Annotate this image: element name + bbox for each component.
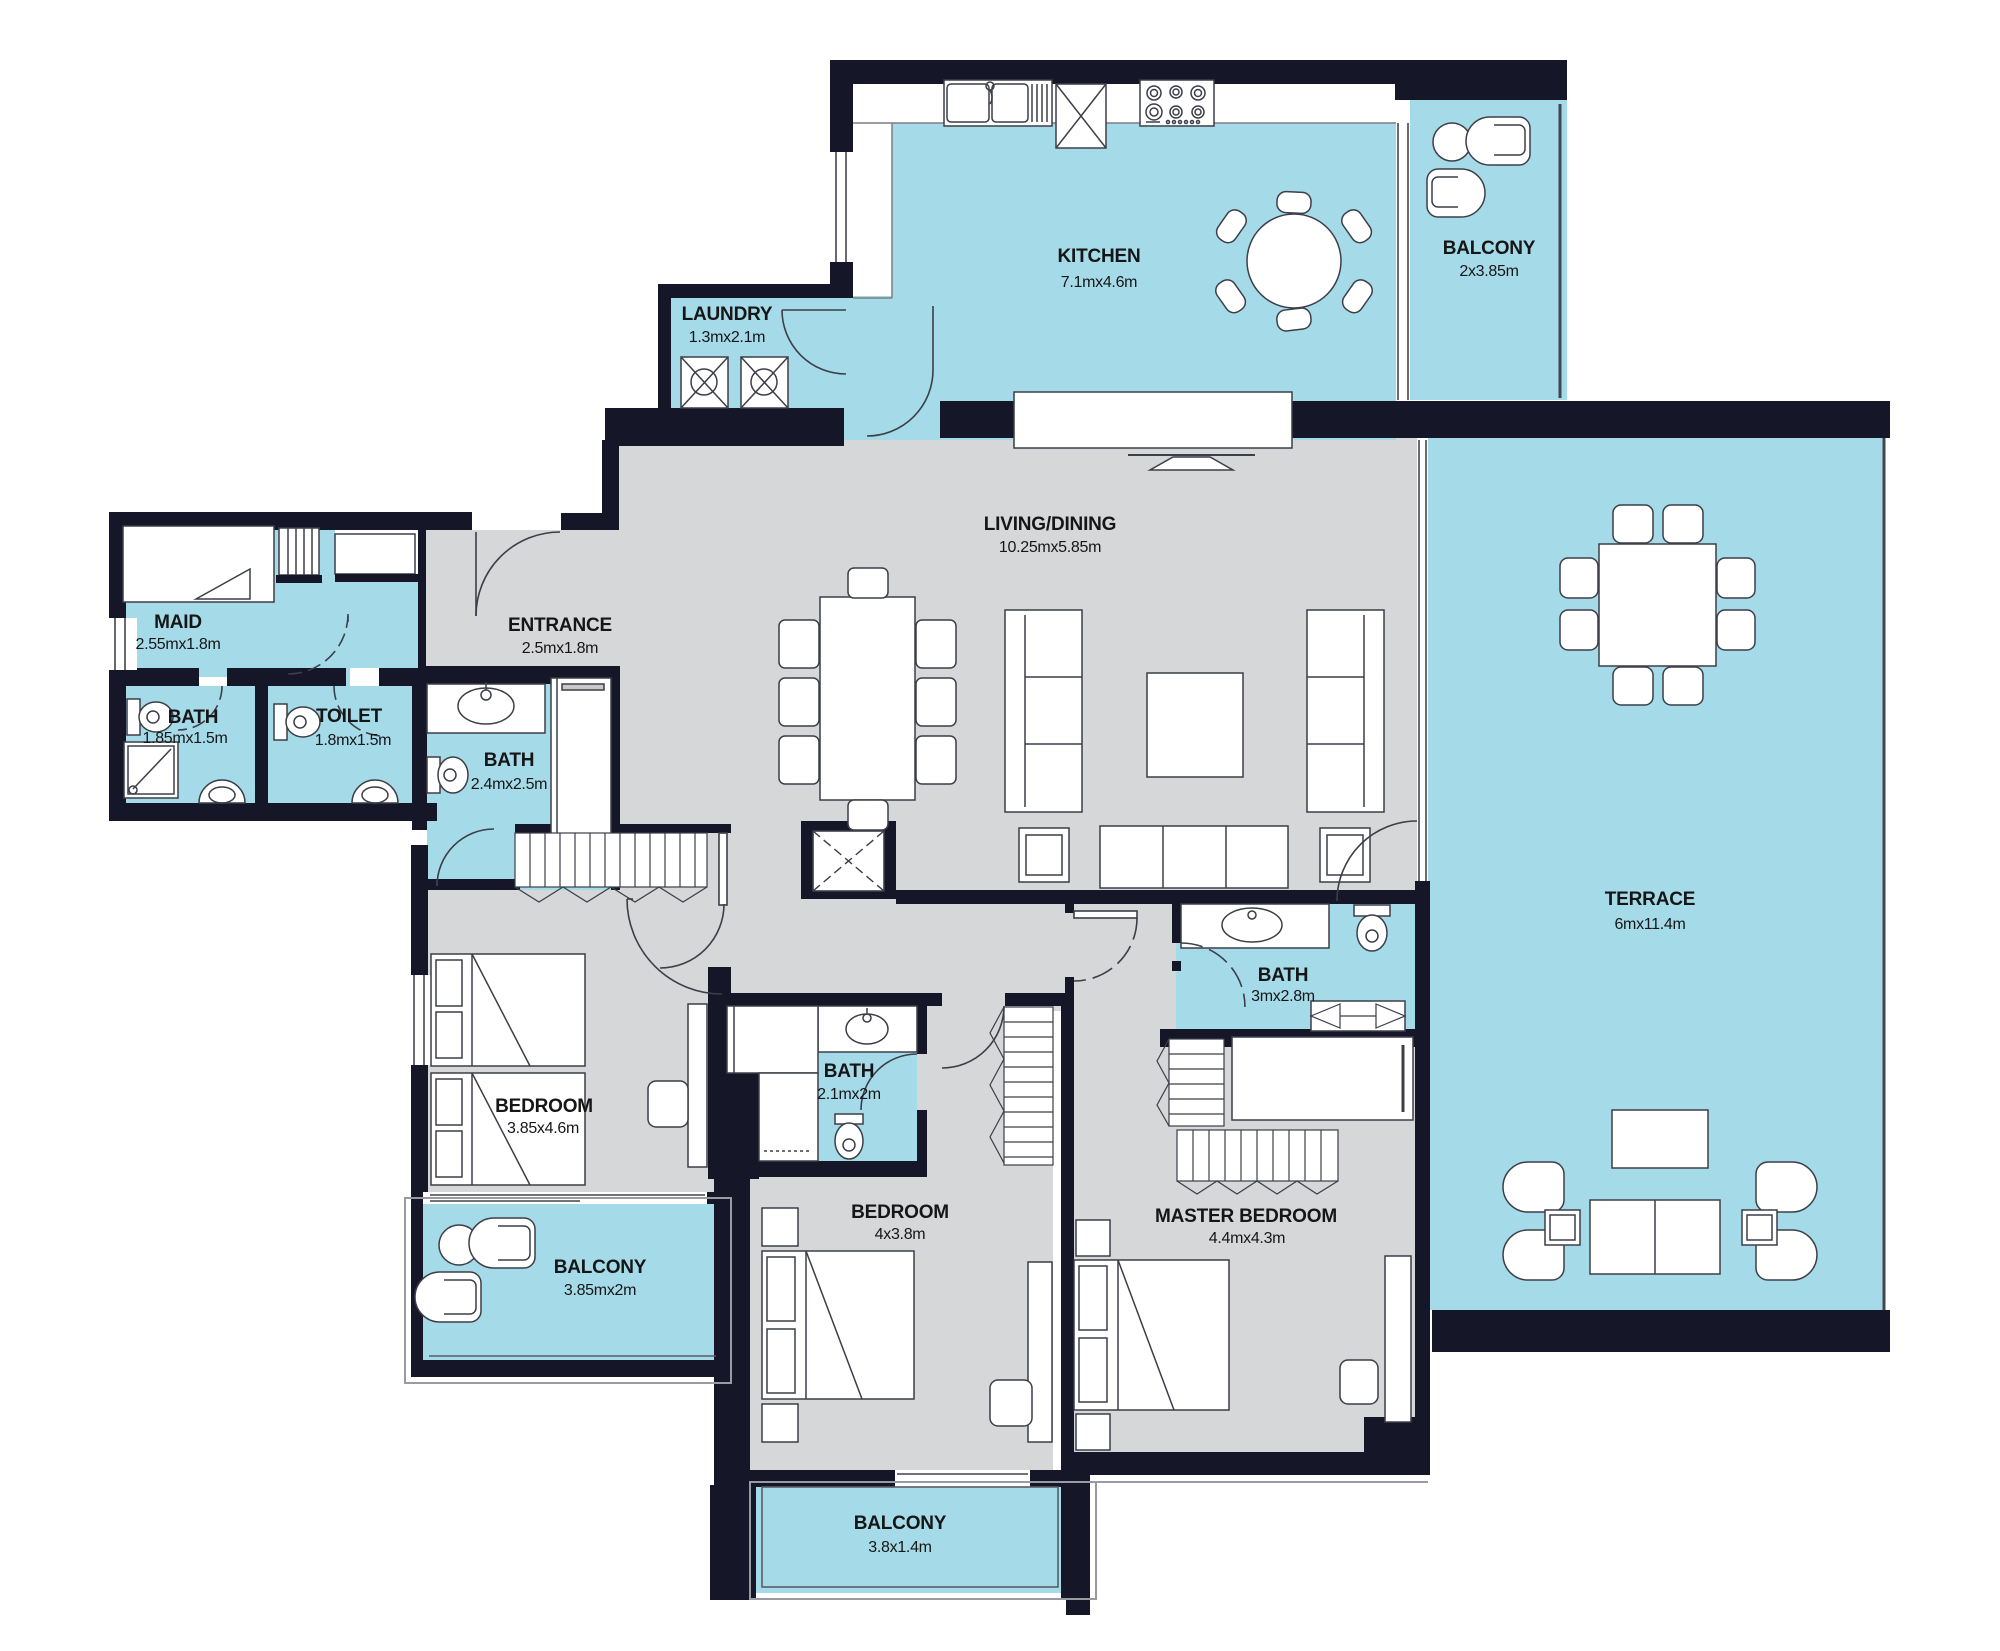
svg-text:BATH: BATH — [824, 1061, 875, 1082]
svg-text:KITCHEN: KITCHEN — [1057, 246, 1140, 267]
svg-text:LAUNDRY: LAUNDRY — [682, 304, 773, 325]
svg-text:3.8x1.4m: 3.8x1.4m — [868, 1539, 931, 1556]
svg-text:1.3mx2.1m: 1.3mx2.1m — [689, 329, 765, 346]
svg-text:TOILET: TOILET — [316, 706, 383, 727]
svg-text:MAID: MAID — [154, 612, 202, 633]
svg-text:4x3.8m: 4x3.8m — [875, 1226, 926, 1243]
svg-text:2.5mx1.8m: 2.5mx1.8m — [522, 640, 598, 657]
svg-text:LIVING/DINING: LIVING/DINING — [984, 514, 1117, 535]
svg-text:3.85x4.6m: 3.85x4.6m — [507, 1120, 579, 1137]
svg-text:BEDROOM: BEDROOM — [495, 1096, 593, 1117]
svg-text:7.1mx4.6m: 7.1mx4.6m — [1061, 274, 1137, 291]
svg-text:10.25mx5.85m: 10.25mx5.85m — [999, 539, 1101, 556]
svg-text:BATH: BATH — [168, 707, 219, 728]
svg-text:2.4mx2.5m: 2.4mx2.5m — [471, 776, 547, 793]
svg-text:2.55mx1.8m: 2.55mx1.8m — [135, 636, 220, 653]
svg-text:3mx2.8m: 3mx2.8m — [1251, 988, 1315, 1005]
svg-text:1.8mx1.5m: 1.8mx1.5m — [315, 732, 391, 749]
svg-text:4.4mx4.3m: 4.4mx4.3m — [1209, 1230, 1285, 1247]
svg-text:ENTRANCE: ENTRANCE — [508, 615, 612, 636]
svg-text:BEDROOM: BEDROOM — [851, 1202, 949, 1223]
svg-text:6mx11.4m: 6mx11.4m — [1614, 916, 1685, 933]
svg-text:2x3.85m: 2x3.85m — [1459, 263, 1518, 280]
svg-text:2.1mx2m: 2.1mx2m — [817, 1086, 881, 1103]
svg-text:BATH: BATH — [1258, 965, 1309, 986]
svg-text:3.85mx2m: 3.85mx2m — [564, 1282, 636, 1299]
svg-text:MASTER BEDROOM: MASTER BEDROOM — [1155, 1206, 1337, 1227]
svg-text:BATH: BATH — [484, 750, 535, 771]
svg-text:1.85mx1.5m: 1.85mx1.5m — [142, 730, 227, 747]
svg-text:BALCONY: BALCONY — [1443, 238, 1536, 259]
svg-text:BALCONY: BALCONY — [554, 1257, 647, 1278]
svg-text:TERRACE: TERRACE — [1605, 889, 1695, 910]
svg-text:BALCONY: BALCONY — [854, 1513, 947, 1534]
